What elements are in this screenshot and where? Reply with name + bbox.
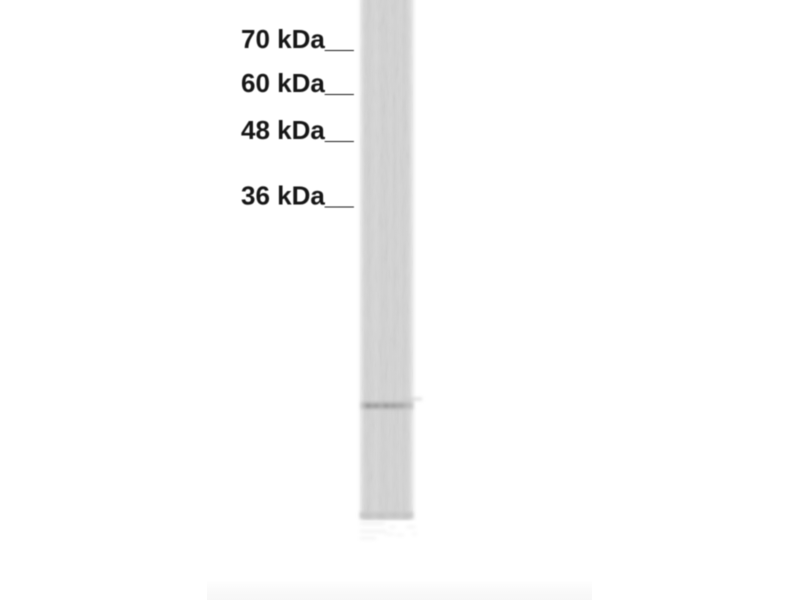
svg-text:48 kDa__: 48 kDa__ [241, 115, 354, 145]
svg-text:60 kDa__: 60 kDa__ [241, 68, 354, 98]
svg-text:36 kDa__: 36 kDa__ [241, 181, 354, 211]
svg-text:70 kDa__: 70 kDa__ [241, 24, 354, 54]
